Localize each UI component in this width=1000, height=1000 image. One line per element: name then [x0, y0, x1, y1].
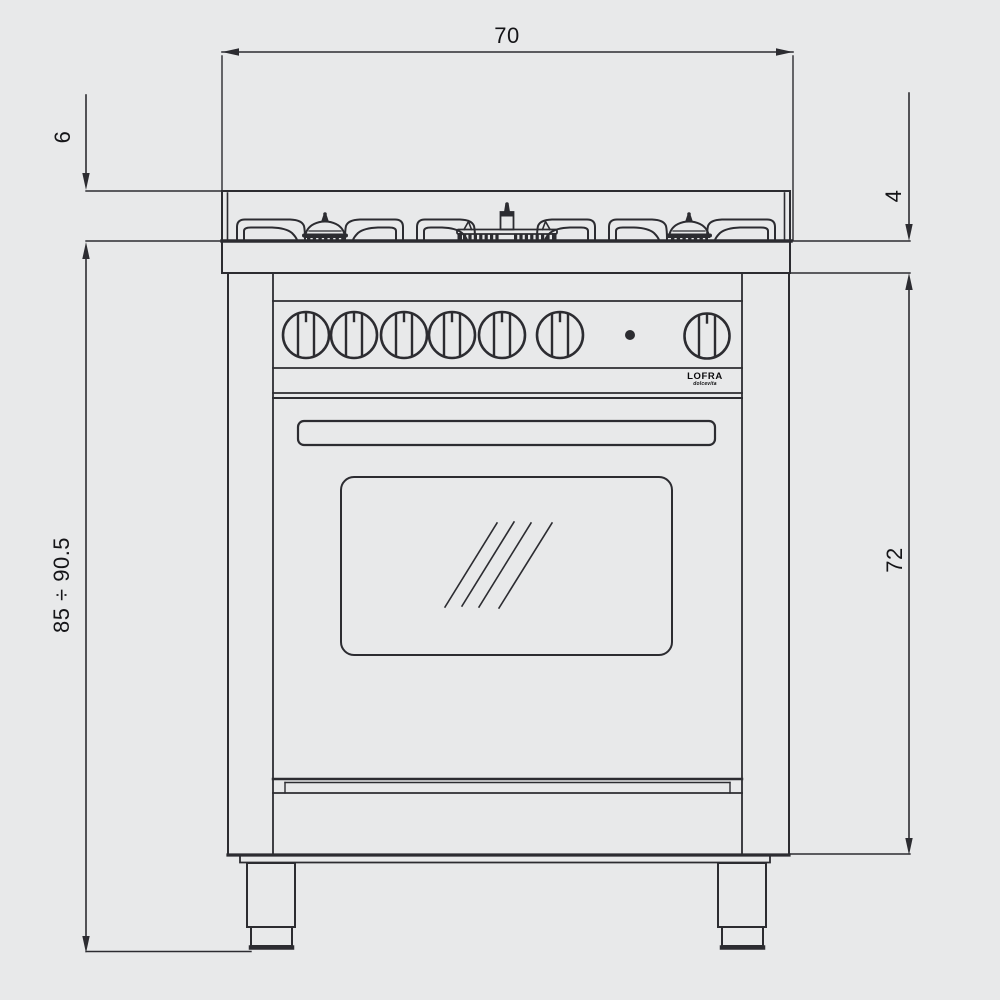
glass-reflection-lines [445, 522, 552, 608]
burner-left [302, 212, 348, 239]
indicator-light [625, 330, 635, 340]
door-window [341, 477, 672, 655]
brand-logo-text: LOFRA [683, 372, 727, 381]
dim-label-backguard-height: 6 [52, 97, 74, 177]
dimension-lines [86, 52, 909, 938]
dim-label-body-height: 72 [884, 520, 906, 600]
dim-label-worktop-thickness: 4 [883, 166, 905, 226]
knob [331, 312, 377, 358]
cooker-elevation-drawing [0, 0, 1000, 1000]
oven-door [273, 398, 742, 793]
brand-logo-subtext: dolcevita [683, 382, 727, 387]
knob [479, 312, 525, 358]
foot-right [718, 863, 766, 948]
cooker-body [228, 273, 789, 855]
dim-label-top-width: 70 [427, 25, 587, 47]
base [228, 855, 789, 863]
worktop-band [222, 242, 790, 273]
knob [429, 312, 475, 358]
burner-right [666, 212, 712, 239]
foot-left [247, 863, 295, 948]
control-knobs [283, 312, 730, 359]
knob [537, 312, 583, 358]
technical-drawing-canvas: 70 6 85 ÷ 90.5 4 72 LOFRA dolcevita [0, 0, 1000, 1000]
pan-support [237, 220, 305, 241]
knob [283, 312, 329, 358]
brand-logo: LOFRA dolcevita [683, 372, 727, 392]
pan-support [345, 220, 403, 241]
door-handle [298, 421, 715, 445]
knob [685, 314, 730, 359]
dim-label-overall-height: 85 ÷ 90.5 [51, 515, 73, 655]
knob [381, 312, 427, 358]
pan-support [707, 220, 775, 241]
pan-support [609, 220, 667, 241]
